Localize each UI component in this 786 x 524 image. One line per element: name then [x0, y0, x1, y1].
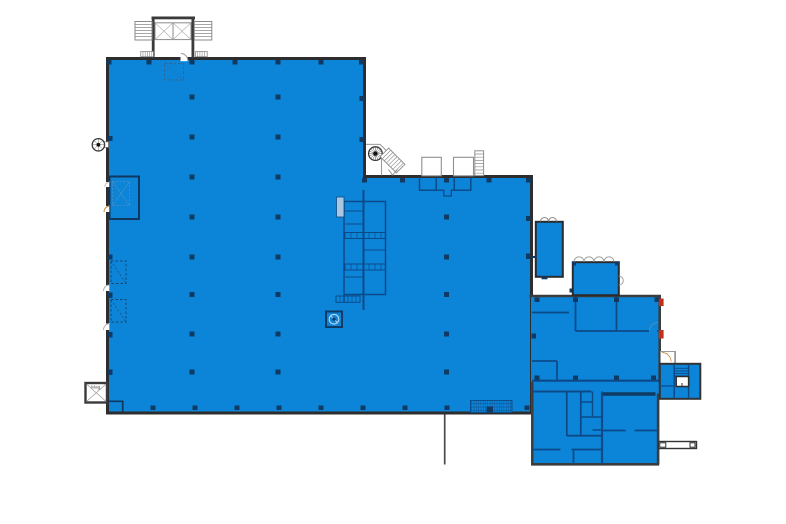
svg-text:Mag.: Mag. — [91, 385, 102, 391]
